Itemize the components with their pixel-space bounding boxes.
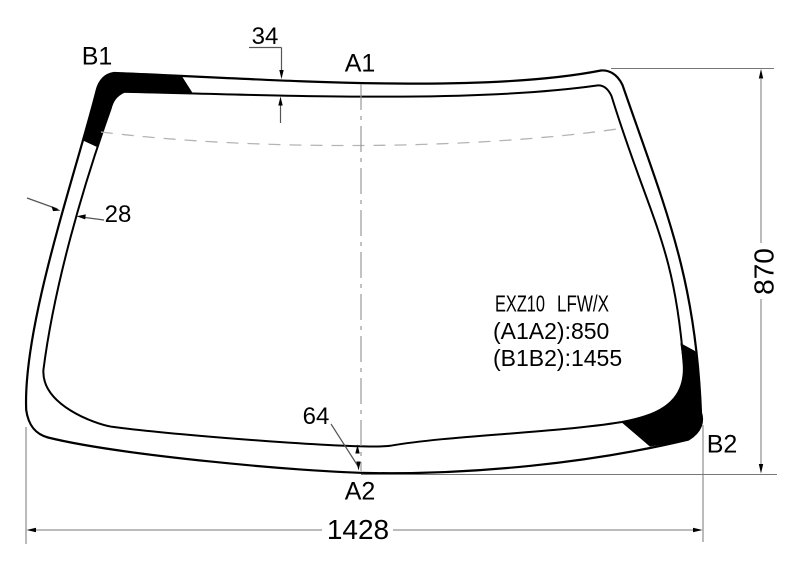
svg-text:B1: B1: [82, 43, 113, 71]
svg-text:A2: A2: [345, 478, 376, 506]
svg-text:A1: A1: [345, 49, 376, 77]
svg-text:34: 34: [252, 23, 279, 50]
svg-text:(B1B2):1455: (B1B2):1455: [493, 345, 622, 371]
svg-text:28: 28: [105, 201, 132, 228]
svg-text:870: 870: [749, 248, 780, 295]
svg-text:(A1A2):850: (A1A2):850: [493, 318, 609, 344]
svg-text:EXZ10LFW/X: EXZ10LFW/X: [495, 291, 609, 317]
svg-text:1428: 1428: [327, 514, 389, 545]
svg-text:B2: B2: [707, 431, 738, 459]
svg-text:64: 64: [303, 403, 330, 430]
